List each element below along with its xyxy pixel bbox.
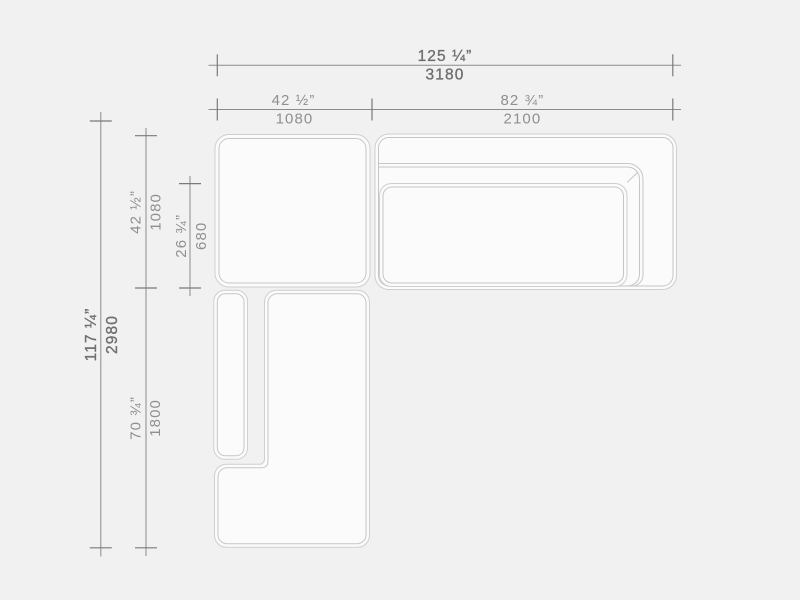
svg-text:125 ¼”: 125 ¼”: [418, 48, 473, 65]
svg-text:70 ¾”: 70 ¾”: [127, 396, 144, 440]
svg-text:42 ½”: 42 ½”: [272, 92, 316, 109]
svg-text:680: 680: [193, 222, 210, 250]
svg-text:26 ¾”: 26 ¾”: [173, 214, 190, 258]
svg-text:1800: 1800: [147, 399, 164, 437]
svg-text:82 ¾”: 82 ¾”: [500, 92, 544, 109]
svg-text:2980: 2980: [104, 315, 121, 354]
svg-text:117 ¼”: 117 ¼”: [83, 308, 100, 362]
svg-text:42 ½”: 42 ½”: [127, 190, 144, 234]
svg-text:2100: 2100: [504, 111, 542, 128]
svg-text:1080: 1080: [148, 193, 165, 231]
svg-text:3180: 3180: [426, 67, 465, 84]
svg-text:1080: 1080: [276, 111, 314, 128]
